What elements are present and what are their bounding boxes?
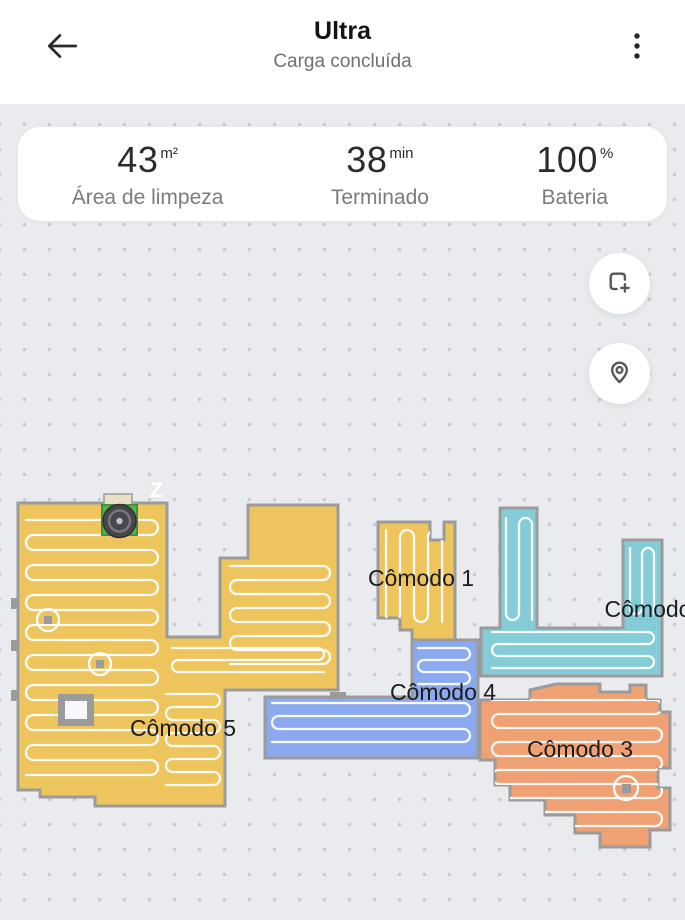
page-title: Ultra — [0, 16, 685, 46]
obstacle-marker — [622, 784, 631, 793]
room-comodo-2[interactable] — [481, 508, 662, 676]
stat-battery-unit: % — [600, 145, 613, 162]
obstacle-marker — [44, 616, 52, 624]
room-label-1: Cômodo 1 — [368, 565, 474, 591]
wall-stub — [11, 690, 19, 701]
header-bar: Ultra Carga concluída — [0, 0, 685, 104]
stat-area-value: 43 — [117, 139, 158, 180]
room-label-5: Cômodo 5 — [130, 715, 236, 741]
pin-location-button[interactable] — [589, 343, 650, 404]
room-label-3: Cômodo 3 — [527, 736, 633, 762]
app-screen: Z Cômodo 1 Cômodo Cômodo 3 Cômodo 4 Cômo… — [0, 0, 685, 920]
add-map-area-icon — [606, 269, 633, 299]
room-label-2: Cômodo — [605, 596, 685, 622]
robot-vacuum — [103, 505, 136, 538]
wall-stub — [11, 640, 19, 651]
obstacle-marker — [96, 660, 104, 668]
room-label-4: Cômodo 4 — [390, 679, 496, 705]
more-menu-button[interactable] — [615, 25, 659, 69]
north-marker: Z — [150, 479, 163, 502]
room-comodo-3[interactable] — [480, 684, 670, 847]
stat-battery-label: Bateria — [536, 186, 613, 210]
room-comodo-5[interactable] — [11, 503, 338, 806]
stat-time-value: 38 — [346, 139, 387, 180]
wall-stub — [11, 598, 19, 609]
kebab-menu-icon — [619, 28, 655, 67]
stat-battery: 100% Bateria — [536, 139, 613, 210]
location-pin-icon — [606, 359, 633, 389]
stat-time: 38min Terminado — [331, 139, 429, 210]
wall-stub — [330, 692, 346, 699]
stat-area-label: Área de limpeza — [72, 186, 224, 210]
stat-area: 43m² Área de limpeza — [72, 139, 224, 210]
stat-time-label: Terminado — [331, 186, 429, 210]
stat-area-unit: m² — [160, 145, 178, 162]
cleaning-stats-card: 43m² Área de limpeza 38min Terminado 100… — [18, 127, 667, 221]
furniture-cutout — [58, 694, 94, 726]
stat-battery-value: 100 — [536, 139, 598, 180]
status-subtitle: Carga concluída — [0, 51, 685, 73]
add-area-button[interactable] — [589, 253, 650, 314]
stat-time-unit: min — [389, 145, 413, 162]
